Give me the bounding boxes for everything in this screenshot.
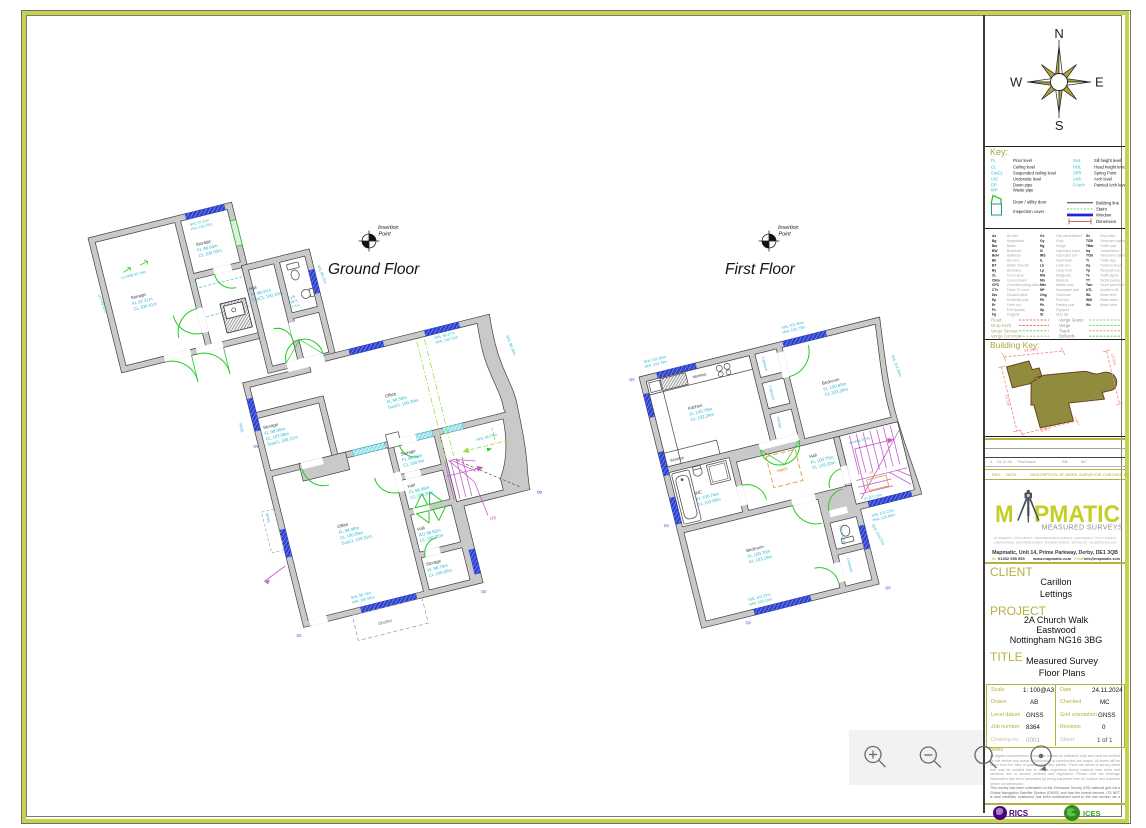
svg-text:Ep: Ep [992, 298, 996, 302]
svg-text:W: W [1010, 75, 1023, 90]
svg-text:Mkr: Mkr [1040, 283, 1047, 287]
svg-text:Earth rod: Earth rod [1007, 303, 1021, 307]
svg-text:CPS: CPS [992, 283, 1000, 287]
svg-text:SHL 101.23mHHL 102.80m: SHL 101.23mHHL 102.80m [871, 508, 896, 522]
svg-text:Letter box: Letter box [1056, 264, 1071, 268]
svg-text:TT: TT [1086, 278, 1090, 282]
svg-text:Head height level: Head height level [1094, 164, 1125, 169]
svg-text:Water valve: Water valve [1100, 303, 1117, 307]
svg-text:Fg: Fg [992, 313, 996, 317]
svg-text:S: S [1055, 118, 1064, 133]
svg-text:P.Arch: P.Arch [1073, 183, 1085, 188]
svg-text:8.9m: 8.9m [1040, 426, 1051, 433]
svg-text:Inspection cover: Inspection cover [1056, 249, 1081, 253]
svg-text:Stairs: Stairs [1096, 207, 1107, 212]
svg-text:Parking post: Parking post [1056, 303, 1074, 307]
svg-text:BT: BT [992, 264, 996, 268]
svg-text:SPR: SPR [1073, 171, 1081, 176]
svg-text:Marker post: Marker post [1056, 283, 1073, 287]
svg-text:3D MODELLING · TOPO SURVEYS ·: 3D MODELLING · TOPO SURVEYS · MEASURED B… [994, 536, 1116, 540]
svg-text:MEASURED SURVEYS: MEASURED SURVEYS [1042, 525, 1123, 532]
svg-text:Hg: Hg [1040, 244, 1044, 248]
svg-text:Disused cable: Disused cable [1007, 293, 1028, 297]
svg-text:Ceiling level: Ceiling level [1013, 164, 1035, 169]
svg-text:Gy: Gy [1040, 239, 1045, 243]
svg-text:Floor level: Floor level [1013, 158, 1032, 163]
svg-text:SHL 101.85mHHL 103.79m: SHL 101.85mHHL 103.79m [643, 355, 668, 369]
svg-text:E: E [1095, 75, 1104, 90]
svg-text:www.mapmatic.com: www.mapmatic.com [1032, 556, 1072, 561]
svg-text:Email: Email [1074, 556, 1084, 561]
svg-text:Verge: Verge [1059, 323, 1071, 328]
svg-text:Bulkhead: Bulkhead [1007, 254, 1021, 258]
svg-text:Traffic post: Traffic post [1100, 244, 1116, 248]
svg-text:IRS: IRS [1040, 254, 1046, 258]
svg-text:Curved beam: Curved beam [1007, 278, 1027, 282]
svg-text:Gv: Gv [1040, 234, 1045, 238]
svg-text:Water meter: Water meter [1100, 298, 1119, 302]
svg-text:Irq: Irq [1086, 249, 1090, 253]
svg-text:Er: Er [992, 303, 996, 307]
svg-text:Waste pipe: Waste pipe [1013, 188, 1034, 193]
svg-text:Ground Floor: Ground Floor [328, 261, 420, 278]
svg-text:IC: IC [1040, 249, 1044, 253]
svg-text:Bk: Bk [992, 259, 996, 263]
svg-text:Window: Window [1096, 213, 1112, 218]
svg-text:NP: NP [1040, 288, 1045, 292]
svg-text:Verge Tarmac: Verge Tarmac [991, 328, 1019, 333]
svg-text:Verge Grass: Verge Grass [1059, 318, 1084, 323]
svg-text:Mh: Mh [1040, 278, 1045, 282]
svg-text:TBar: TBar [1086, 244, 1094, 248]
svg-text:IL: IL [1040, 259, 1043, 263]
svg-text:UTL: UTL [1086, 288, 1092, 292]
svg-text:SHL 101.80mHHL 103.73m: SHL 101.80mHHL 103.73m [781, 321, 806, 335]
svg-text:RICS: RICS [1009, 809, 1029, 818]
svg-text:Hedge: Hedge [1056, 244, 1066, 248]
svg-text:Dp: Dp [536, 489, 543, 495]
svg-text:Up: Up [489, 515, 497, 522]
svg-text:SHL 98.36m: SHL 98.36m [505, 335, 516, 356]
svg-text:FL: FL [991, 158, 997, 163]
svg-text:Track: Track [1059, 328, 1071, 333]
svg-text:Signpost: Signpost [1056, 308, 1069, 312]
svg-text:10.3m: 10.3m [1004, 394, 1012, 407]
svg-text:Mudguard: Mudguard [1056, 273, 1071, 277]
svg-text:Flagpole: Flagpole [1007, 313, 1020, 317]
svg-text:Tr: Tr [1086, 259, 1090, 263]
svg-text:Beam: Beam [1007, 244, 1016, 248]
svg-text:Brickwork: Brickwork [1007, 249, 1022, 253]
svg-text:Telegraph post: Telegraph post [1100, 268, 1122, 272]
svg-text:St: St [1040, 313, 1044, 317]
svg-text:Traffic sign: Traffic sign [1100, 259, 1116, 263]
svg-text:Post box: Post box [1056, 298, 1069, 302]
svg-text:Insertion: Insertion [378, 225, 399, 231]
svg-text:U/S: U/S [991, 177, 998, 182]
svg-text:Painted Arch level: Painted Arch level [1094, 183, 1125, 188]
svg-text:Tp: Tp [1086, 268, 1090, 272]
svg-text:Invert level: Invert level [1056, 259, 1072, 263]
svg-text:Pk: Pk [1040, 303, 1044, 307]
svg-text:Sill height level: Sill height level [1094, 158, 1121, 163]
svg-text:Shute: Shute [238, 422, 244, 433]
svg-text:Inspection box: Inspection box [1056, 254, 1078, 258]
svg-text:Electricity post: Electricity post [1007, 298, 1028, 302]
svg-text:Sv: Sv [1086, 234, 1090, 238]
svg-text:Dp: Dp [745, 619, 752, 625]
svg-text:SusCL: SusCL [991, 171, 1004, 176]
svg-text:CL: CL [992, 273, 996, 277]
svg-text:Point: Point [779, 232, 792, 238]
svg-text:MG: MG [1040, 273, 1046, 277]
svg-text:Ohg: Ohg [1040, 293, 1047, 297]
svg-text:Building line: Building line [1096, 201, 1120, 206]
svg-text:SHL 101.80m: SHL 101.80m [890, 354, 902, 377]
svg-text:CBm: CBm [992, 278, 1000, 282]
svg-text:Underside level: Underside level [1013, 177, 1041, 182]
svg-text:Fv: Fv [992, 308, 996, 312]
svg-text:Twn: Twn [1086, 283, 1092, 287]
svg-text:WM: WM [1086, 298, 1092, 302]
svg-text:SHL 98.16m: SHL 98.16m [316, 264, 327, 284]
svg-text:Telephone call box: Telephone call box [1100, 254, 1125, 258]
svg-text:LASER SCANNING · MONITORING SU: LASER SCANNING · MONITORING SURVEYS · BO… [994, 541, 1116, 545]
svg-text:Pb: Pb [1040, 298, 1044, 302]
svg-text:ICES: ICES [1083, 809, 1101, 818]
svg-text:TCB: TCB [1086, 254, 1093, 258]
svg-text:Lamp Post: Lamp Post [1056, 268, 1072, 272]
svg-text:Cable TV cover: Cable TV cover [1007, 288, 1031, 292]
svg-text:Inspection cover: Inspection cover [1013, 209, 1045, 214]
svg-text:BW: BW [992, 249, 998, 253]
svg-text:Stop tap: Stop tap [1056, 313, 1068, 317]
svg-text:Wv: Wv [1086, 303, 1091, 307]
svg-text:Unable to lift: Unable to lift [1100, 288, 1118, 292]
svg-text:14.35m: 14.35m [1024, 347, 1039, 353]
svg-text:Boundary: Boundary [1007, 268, 1021, 272]
svg-text:Lb: Lb [1040, 264, 1044, 268]
svg-text:Bg: Bg [992, 239, 996, 243]
svg-text:As: As [992, 234, 996, 238]
svg-text:Cover level: Cover level [1007, 273, 1024, 277]
svg-text:12.9m: 12.9m [1110, 353, 1118, 366]
svg-text:BoH: BoH [992, 254, 999, 258]
svg-text:Suspended ceiling level: Suspended ceiling level [1013, 171, 1056, 176]
svg-text:M: M [995, 501, 1014, 528]
svg-text:Tactile paving: Tactile paving [1100, 278, 1120, 282]
svg-text:Dp: Dp [885, 584, 892, 590]
svg-text:Shute: Shute [265, 512, 271, 523]
svg-text:Dis: Dis [992, 293, 997, 297]
svg-text:Tel: Tel [991, 556, 996, 561]
svg-text:Bargeboard: Bargeboard [1007, 239, 1024, 243]
svg-text:Insertion: Insertion [778, 225, 799, 231]
svg-text:Concrete paving slabs: Concrete paving slabs [1007, 283, 1040, 287]
svg-text:N: N [1054, 26, 1063, 41]
svg-text:Verge Concrete: Verge Concrete [991, 334, 1022, 339]
svg-text:Manhole: Manhole [1056, 278, 1069, 282]
svg-text:Transom level: Transom level [1100, 264, 1121, 268]
svg-text:Traffic signal: Traffic signal [1100, 273, 1119, 277]
svg-text:Drop Kerb: Drop Kerb [991, 323, 1012, 328]
svg-text:Sp: Sp [1040, 308, 1044, 312]
svg-text:Bollards: Bollards [1059, 334, 1076, 339]
svg-text:Overhead: Overhead [1056, 293, 1071, 297]
svg-text:Shelter: Shelter [377, 618, 393, 626]
svg-text:Dp: Dp [296, 632, 303, 638]
svg-text:Telephone call box: Telephone call box [1100, 239, 1125, 243]
svg-text:SHL: SHL [1073, 158, 1082, 163]
svg-text:Dp: Dp [663, 522, 670, 528]
svg-text:Dp: Dp [629, 376, 636, 382]
svg-text:Irq: Irq [1086, 264, 1090, 268]
svg-text:Box end: Box end [1007, 259, 1019, 263]
svg-text:WL: WL [1086, 293, 1091, 297]
svg-text:By: By [992, 268, 996, 272]
svg-text:Gully: Gully [1056, 239, 1064, 243]
svg-text:Touch pavement: Touch pavement [1100, 283, 1124, 287]
svg-text:Air vent: Air vent [1007, 234, 1018, 238]
svg-text:Lp: Lp [1040, 268, 1044, 272]
svg-text:Arch: Arch [1073, 177, 1082, 182]
svg-text:HHL: HHL [1073, 164, 1082, 169]
svg-text:01332 955 555: 01332 955 555 [998, 556, 1025, 561]
svg-text:CL: CL [991, 164, 997, 169]
svg-text:Spring Point: Spring Point [1094, 171, 1117, 176]
svg-text:Road: Road [991, 318, 1002, 323]
svg-text:Drain / utility door: Drain / utility door [1013, 200, 1047, 205]
svg-text:Gas valve/Marker: Gas valve/Marker [1056, 234, 1083, 238]
svg-text:Point: Point [379, 232, 392, 238]
svg-text:Dp: Dp [481, 588, 488, 594]
svg-text:TCB: TCB [1086, 239, 1093, 243]
svg-text:CTv: CTv [992, 288, 998, 292]
svg-text:Dimension: Dimension [1096, 219, 1117, 224]
svg-text:info@mapmatic.com: info@mapmatic.com [1084, 556, 1120, 561]
svg-text:Transmission: Transmission [1100, 249, 1120, 253]
svg-text:Stop valve: Stop valve [1100, 234, 1116, 238]
svg-text:WP: WP [991, 188, 998, 193]
svg-text:Ts: Ts [1086, 273, 1090, 277]
svg-text:Arch level: Arch level [1094, 177, 1112, 182]
svg-text:First Floor: First Floor [725, 261, 796, 278]
svg-text:Bm: Bm [992, 244, 997, 248]
svg-text:British Telecom: British Telecom [1007, 264, 1030, 268]
svg-text:Fire hydrant: Fire hydrant [1007, 308, 1025, 312]
svg-text:Nameplate post: Nameplate post [1056, 288, 1079, 292]
svg-text:Water level: Water level [1100, 293, 1117, 297]
svg-text:EHL 103.37m: EHL 103.37m [871, 524, 885, 546]
